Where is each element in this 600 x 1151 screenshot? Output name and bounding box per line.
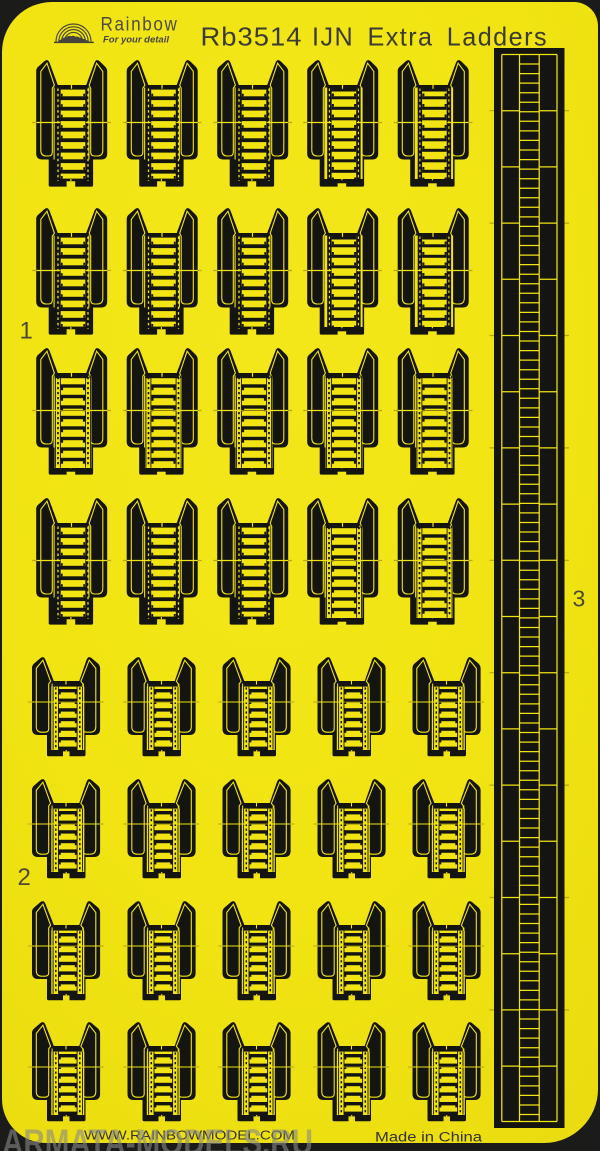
svg-text:Rb3514: Rb3514 bbox=[201, 22, 303, 52]
svg-text:Rainbow: Rainbow bbox=[101, 15, 179, 36]
svg-text:ARMATA-MODELS.RU: ARMATA-MODELS.RU bbox=[2, 1122, 313, 1151]
svg-text:3: 3 bbox=[573, 586, 586, 612]
svg-text:Made in China: Made in China bbox=[375, 1130, 483, 1145]
svg-text:1: 1 bbox=[20, 318, 33, 345]
svg-text:IJN Extra Ladders: IJN Extra Ladders bbox=[312, 22, 548, 52]
svg-text:For your detail: For your detail bbox=[103, 34, 169, 44]
svg-text:2: 2 bbox=[18, 864, 31, 891]
